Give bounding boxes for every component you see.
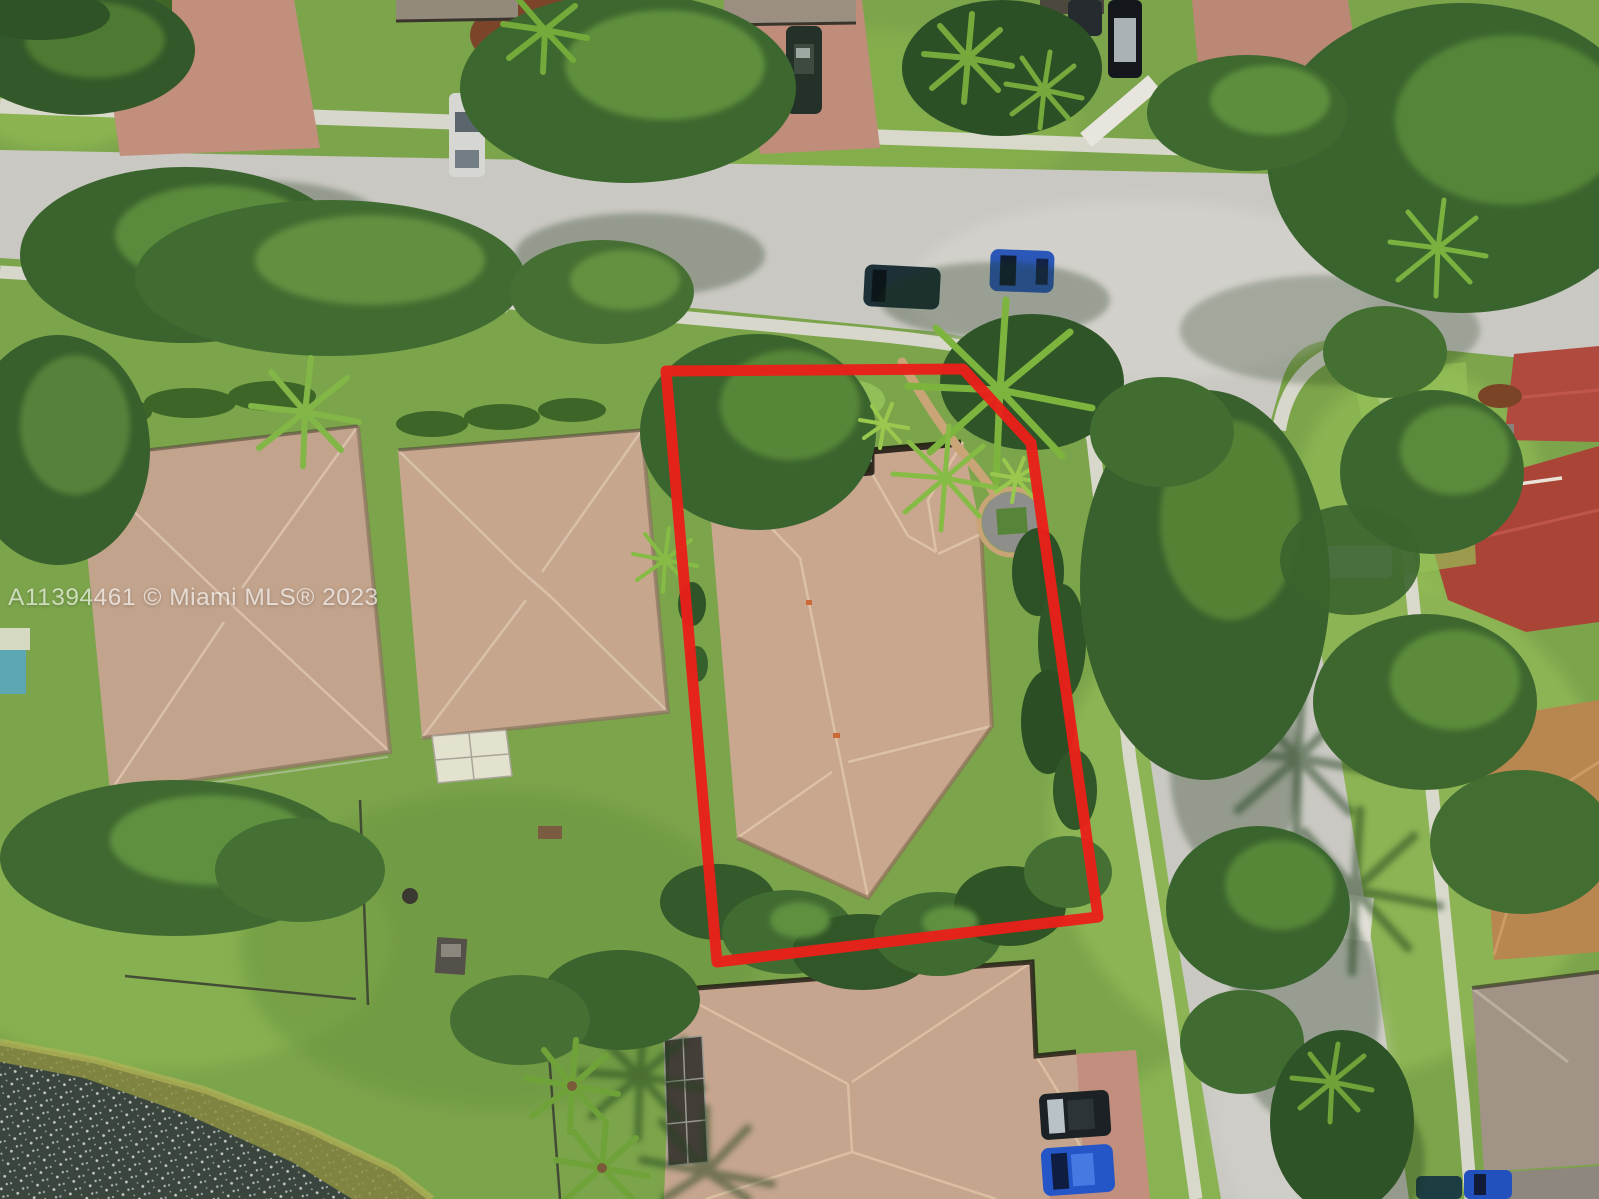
aerial-photo-canvas bbox=[0, 0, 1599, 1199]
tree-canopy bbox=[1323, 306, 1447, 398]
tree-canopy bbox=[450, 975, 590, 1065]
foundation-hedge bbox=[538, 398, 606, 422]
car-window bbox=[455, 150, 479, 168]
tree-canopy-highlight bbox=[20, 355, 130, 495]
car-blue-3 bbox=[1464, 1170, 1512, 1199]
house-roof-bottom bbox=[664, 962, 1083, 1199]
bench bbox=[538, 826, 562, 839]
tree-canopy bbox=[1090, 377, 1234, 487]
car-roof-highlight bbox=[1071, 1153, 1095, 1186]
foundation-hedge bbox=[464, 404, 540, 430]
planter-square bbox=[996, 507, 1028, 535]
car-teal-2 bbox=[1416, 1176, 1462, 1199]
roof-repair-mark bbox=[833, 733, 840, 738]
rooftop-eave bbox=[396, 0, 518, 20]
tree-canopy bbox=[215, 818, 385, 922]
pool-deck bbox=[0, 628, 30, 650]
tree-canopy-highlight bbox=[1400, 405, 1510, 495]
car-roof-rails bbox=[1114, 18, 1136, 62]
tree-canopy-highlight bbox=[1225, 840, 1335, 930]
car-windshield bbox=[1047, 1099, 1065, 1134]
garden-shed-roof bbox=[441, 944, 461, 957]
car-glint bbox=[796, 48, 810, 58]
aerial-photo: A11394461 © Miami MLS® 2023 bbox=[0, 0, 1599, 1199]
shrub-highlight bbox=[770, 902, 830, 938]
tree-canopy-highlight bbox=[1390, 630, 1520, 730]
roof-repair-mark bbox=[806, 600, 812, 605]
palm-trunk bbox=[567, 1081, 577, 1091]
eave-shadow bbox=[396, 19, 518, 21]
car-window bbox=[1051, 1153, 1069, 1190]
tree-canopy-highlight bbox=[565, 10, 765, 120]
scene-shapes bbox=[0, 0, 1599, 1199]
swimming-pool bbox=[0, 650, 26, 694]
mulch-bed bbox=[1478, 384, 1522, 408]
foundation-hedge bbox=[144, 388, 236, 418]
tree-canopy-highlight bbox=[570, 250, 680, 310]
car-roof bbox=[1067, 1099, 1095, 1131]
palm-trunk bbox=[597, 1163, 607, 1173]
foundation-hedge bbox=[396, 411, 468, 437]
tree-canopy bbox=[1280, 505, 1420, 615]
tree-canopy-highlight bbox=[1210, 65, 1330, 135]
car-window bbox=[1474, 1174, 1486, 1195]
tree-canopy-highlight bbox=[255, 215, 485, 305]
house-roof-center bbox=[398, 430, 668, 738]
fire-pit bbox=[402, 888, 418, 904]
